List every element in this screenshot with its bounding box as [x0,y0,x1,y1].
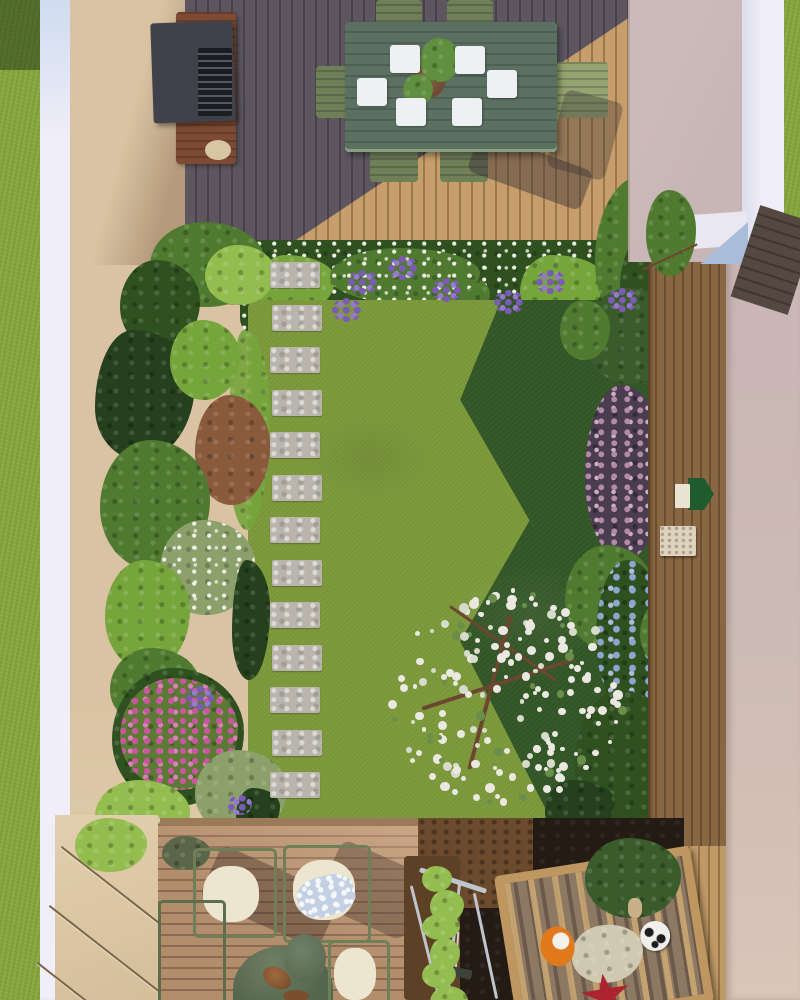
blossom-dot [439,710,446,717]
blossom-dot [583,765,589,771]
blossom-dot [442,679,448,685]
blossom-dot [452,789,458,795]
blossom-dot [533,669,538,674]
blossom-dot [577,755,587,765]
blossom-dot [438,721,447,730]
blossom-dot [491,643,499,651]
blossom-dot [439,758,444,763]
blossom-dot [614,720,618,724]
blossom-dot [471,760,480,769]
neighbour-grass-top-right [784,0,800,242]
blossom-dot [525,621,534,630]
stepping-stone [270,517,320,543]
blossom-dot [541,732,549,740]
side-chair-frame [158,900,226,1000]
blossom-dot [522,760,530,768]
neighbour-wall-right [726,222,800,1000]
blossom-dot [544,638,549,643]
blossom-dot [586,713,591,718]
blossom-dot [542,691,549,698]
blossom-dot [568,676,575,683]
blossom-dot [430,629,435,634]
blossom-dot [547,759,555,767]
blossom-dot [527,753,534,760]
stepping-stone [272,475,322,501]
blossom-dot [508,659,514,665]
blossom-dot [441,620,449,628]
blossom-dot [560,623,565,628]
purple-flower-cluster [494,290,524,314]
blossom-dot [475,638,480,643]
blossom-dot [535,764,542,771]
blossom-dot [558,636,566,644]
blossom-dot [411,720,416,725]
blossom-dot [392,717,397,722]
lower-deck-edge [160,818,422,826]
neighbour-grass-shadow [0,0,44,70]
bbq-grate [198,48,232,116]
blossom-dot [509,773,517,781]
blossom-dot [470,655,478,663]
blossom-dot [485,783,495,793]
blossom-dot [527,784,535,792]
bird-box-green-face [675,484,690,508]
blossom-dot [527,646,536,655]
bbq-bowl [205,140,231,160]
blossom-dot [457,622,465,630]
blossom-dot [580,661,584,665]
blossom-dot [594,687,600,693]
blossom-dot [530,683,536,689]
blossom-dot [588,643,596,651]
stepping-stone [270,347,320,373]
blossom-dot [567,689,575,697]
blossom-dot [453,766,461,774]
blossom-tree [378,582,626,814]
stepping-stone [270,772,320,798]
blossom-dot [558,708,566,716]
blossom-dot [592,750,599,757]
blossom-dot [533,691,538,696]
blossom-dot [416,750,422,756]
placemat [455,46,485,74]
blossom-dot [613,690,623,700]
blossom-dot [480,692,486,698]
blossom-dot [431,668,436,673]
stepping-stone [272,645,322,671]
garden-render [0,0,800,1000]
blossom-dot [400,684,408,692]
blossom-dot [537,707,542,712]
blossom-dot [419,678,427,686]
blossom-dot [504,675,508,679]
blossom-dot [517,715,524,722]
blossom-dot [547,610,556,619]
blossom-dot [500,798,507,805]
blossom-dot [496,769,503,776]
purple-flower-cluster [348,270,378,294]
blossom-dot [608,740,612,744]
blossom-dot [545,652,554,661]
stepping-stone [270,602,320,628]
stepping-stone [272,560,322,586]
blossom-dot [487,799,492,804]
blossom-dot [474,648,480,654]
blossom-dot [504,748,510,754]
blossom-dot [618,706,628,716]
blossom-dot [518,637,522,641]
blossom-dot [579,708,586,715]
blossom-dot [557,616,563,622]
blossom-dot [587,706,595,714]
blossom-dot [410,758,415,763]
blossom-dot [610,682,617,689]
blossom-dot [457,730,465,738]
placemat [357,78,387,106]
plate-2 [283,990,309,1000]
blossom-dot [555,773,564,782]
stepping-stone [270,687,320,713]
blossom-dot [560,747,565,752]
blossom-dot [406,747,412,753]
coffee-table-small [284,934,326,982]
stepping-stone [272,730,322,756]
blossom-dot [533,602,538,607]
blossom-dot [398,675,406,683]
blossom-dot [460,632,469,641]
blossom-dot [475,743,480,748]
blossom-dot [427,739,433,745]
placemat [396,98,426,126]
blossom-dot [522,672,531,681]
blossom-dot [543,785,551,793]
blossom-dot [515,653,523,661]
blossom-dot [598,706,607,715]
blossom-dot [459,603,469,613]
blossom-dot [558,643,568,653]
stepping-stone [270,432,320,458]
blossom-dot [511,588,515,592]
blossom-dot [416,658,423,665]
purple-flower-cluster [388,256,418,280]
blossom-dot [561,608,570,617]
blossom-dot [422,727,426,731]
stepping-stone [272,305,322,331]
blossom-dot [429,773,437,781]
stepping-stone [272,390,322,416]
blossom-dot [453,681,459,687]
blossom-dot [502,650,510,658]
blossom-dot [585,672,592,679]
blossom-dot [415,712,424,721]
blossom-dot [507,595,517,605]
blossom-dot [488,625,494,631]
placemat [390,45,420,73]
bird-box-cream [660,526,696,556]
blossom-dot [441,674,447,680]
blossom-dot [596,721,601,726]
blossom-dot [486,600,491,605]
blossom-dot [440,782,450,792]
purple-flower-cluster [432,278,462,302]
blossom-dot [493,685,501,693]
purple-flower-cluster [536,270,566,294]
blossom-dot [482,728,487,733]
blossom-dot [494,747,503,756]
blossom-dot [567,622,575,630]
placemat [487,70,517,98]
lounge-chair-3-cushion [334,948,376,1000]
blossom-dot [492,668,496,672]
blossom-dot [498,626,508,636]
purple-flower-cluster [332,298,362,322]
stepping-stone [270,262,320,288]
blossom-dot [484,737,491,744]
blossom-dot [557,690,564,697]
blossom-dot [552,731,558,737]
placemat [452,98,482,126]
purple-flower-cluster [608,288,638,312]
blossom-dot [565,652,574,661]
blossom-dot [520,699,525,704]
blossom-dot [519,794,527,802]
blossom-dot [556,786,563,793]
blossom-dot [413,684,418,689]
blossom-dot [533,745,540,752]
blossom-dot [591,626,600,635]
blossom-dot [461,776,467,782]
blossom-dot [523,693,530,700]
blossom-dot [473,794,480,801]
blossom-dot [478,612,483,617]
blossom-dot [574,665,581,672]
blossom-dot [522,603,527,608]
blossom-dot [388,700,397,709]
blossom-dot [415,631,420,636]
blossom-dot [529,596,534,601]
young-tree-trunk [628,898,642,918]
blossom-branch-3 [449,605,557,682]
